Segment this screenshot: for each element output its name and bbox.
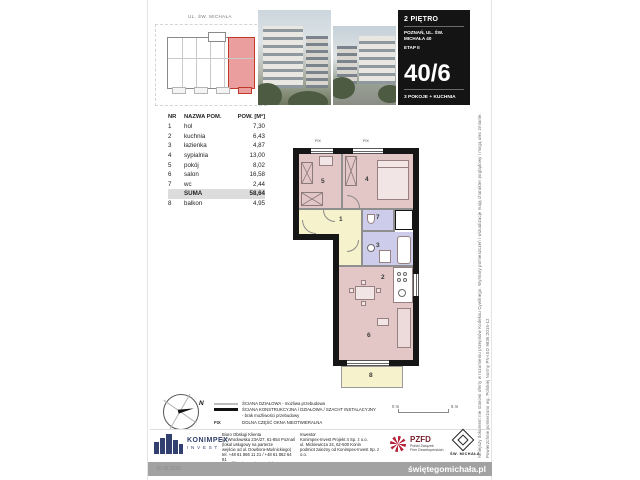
room-label-5: 5 [321, 178, 325, 185]
layout-label: 3 POKOJE + KUCHNIA [404, 95, 464, 100]
disclaimer-outer: Powierzchnie pomierzono wg. Polskiej Nor… [485, 8, 490, 458]
row-nr: 8 [168, 200, 182, 207]
balcony-mark [172, 87, 186, 94]
page-edge-right [491, 0, 492, 480]
stove-burner [403, 278, 407, 282]
fix-annotation: FIX [315, 139, 321, 143]
partition-hol-wc [361, 210, 363, 267]
fix-annotation: FIX [363, 139, 369, 143]
room-label-2: 2 [381, 274, 385, 281]
stove-burner [397, 272, 401, 276]
row-name: sypialnia [182, 152, 237, 159]
table-row: 2kuchnia6,43 [168, 132, 265, 142]
col-area: POW. [M²] [237, 114, 265, 120]
furniture-sofa [397, 308, 411, 348]
table-row: 4sypialnia13,00 [168, 151, 265, 161]
wall-left [293, 148, 299, 240]
balcony-mark-highlighted [238, 87, 252, 94]
furniture-dining-table [355, 286, 375, 300]
row-area: 13,00 [237, 152, 265, 159]
furniture-coffee-table [377, 318, 389, 326]
street-label: UL. ŚW. MICHAŁA [155, 14, 265, 19]
row-nr: 4 [168, 152, 182, 159]
date-label: 10.06.2020 [156, 466, 181, 472]
compass-icon: N [162, 392, 208, 432]
sw-michala-logo: ŚW. MICHAŁA [450, 430, 480, 460]
balcony-mark [194, 87, 208, 94]
stair-core [208, 32, 226, 42]
site-plan-building [167, 37, 255, 89]
row-area: 8,02 [237, 162, 265, 169]
row-nr: 7 [168, 181, 182, 188]
divider [404, 26, 464, 27]
furniture-wardrobe [301, 192, 323, 206]
bathroom-sink [367, 244, 375, 252]
diamond-icon [452, 429, 475, 452]
row-nr: 2 [168, 133, 182, 140]
row-area: 4,87 [237, 142, 265, 149]
floor-plan: FIX FIX 5 4 1 7 3 2 [285, 136, 433, 394]
row-area: 2,44 [237, 181, 265, 188]
window-sypialnia [353, 148, 383, 154]
furniture-desk [319, 156, 333, 166]
highlighted-unit [228, 37, 255, 89]
washing-machine [379, 250, 391, 263]
unit-number: 40/6 [404, 62, 464, 86]
row-nr: 5 [168, 162, 182, 169]
structural-wall-swatch [214, 408, 238, 411]
disclaimer-inner: Niniejszy dokument nie stanowi oferty w … [477, 8, 482, 458]
bathtub [397, 236, 411, 264]
table-row: 8balkon4,95 [168, 199, 265, 209]
page-edge-left [147, 0, 148, 480]
row-area: 4,95 [237, 200, 265, 207]
partition-5-4 [341, 154, 343, 208]
row-nr: 1 [168, 123, 182, 130]
stage-label: ETAP II [404, 45, 464, 50]
partition-wc-lazienka [363, 230, 393, 232]
footer-divider [150, 429, 490, 430]
compass-north-label: N [199, 400, 204, 407]
toilet [367, 214, 375, 224]
row-nr: 6 [168, 171, 182, 178]
row-area: 7,30 [237, 123, 265, 130]
pzfd-sub2: Firm Deweloperskich [410, 448, 444, 452]
room-table: NR NAZWA POM. POW. [M²] 1hol7,30 2kuchni… [168, 112, 265, 208]
furniture-chair [376, 288, 381, 293]
address-label: POZNAŃ, UL. ŚW. MICHAŁA 40 [404, 30, 464, 42]
furniture-wardrobe [345, 156, 357, 186]
furniture-chair [361, 301, 366, 306]
window-balkon-door [347, 360, 389, 366]
legend-structural-text: ŚCIANA KONSTRUKCYJNA / DZIAŁOWA / SZACHT… [242, 407, 376, 412]
table-row: 3łazienka4,87 [168, 141, 265, 151]
table-row: 6salon16,58 [168, 170, 265, 180]
legend-structural-text2: - brak możliwości przebudowy [242, 413, 299, 418]
pzfd-abbr: PZFD [410, 435, 444, 444]
bottom-bar: 10.06.2020 świętegomichała.pl [148, 462, 492, 476]
room-label-1: 1 [339, 216, 343, 223]
row-name: balkon [182, 200, 237, 207]
scale-end-label: 5 m [451, 404, 458, 409]
furniture-wardrobe [301, 162, 313, 184]
floor-label: 2 PIĘTRO [404, 16, 464, 23]
unit-info-card: 2 PIĘTRO POZNAŃ, UL. ŚW. MICHAŁA 40 ETAP… [398, 10, 470, 105]
stove-burner [403, 272, 407, 276]
window-kuchnia [413, 274, 419, 296]
wall-right [413, 148, 419, 366]
room-label-4: 4 [365, 176, 369, 183]
kitchen-sink [398, 289, 406, 297]
row-area: 58,64 [237, 190, 265, 197]
row-area: 6,43 [237, 133, 265, 140]
furniture-chair [349, 288, 354, 293]
room-label-7: 7 [376, 214, 380, 221]
legend-fix-text: DOLNA CZĘŚĆ OKNA NIEOTWIERALNA [242, 420, 322, 425]
building-rendering-2 [333, 26, 396, 105]
table-row-suma: SUMA58,64 [168, 189, 265, 199]
furniture-chair [361, 280, 366, 285]
row-name: łazienka [182, 142, 237, 149]
stove-burner [397, 278, 401, 282]
row-name: SUMA [182, 190, 237, 197]
building-rendering-1 [258, 10, 331, 105]
scale-start-label: 0 m [392, 404, 399, 409]
investor-info: Inwestor Konimpex-Invest Projekt 4 Sp. z… [300, 433, 380, 458]
konimpex-logo: KONIMPEX INVEST [154, 434, 216, 458]
table-row: 5pokój8,02 [168, 160, 265, 170]
divider [404, 89, 464, 90]
row-nr: 3 [168, 142, 182, 149]
site-plan [155, 24, 267, 106]
furniture-bed-pillows [377, 160, 409, 168]
wall-lower-left [333, 234, 339, 366]
room-label-6: 6 [367, 332, 371, 339]
room-label-8: 8 [369, 372, 373, 379]
col-name: NAZWA POM. [182, 114, 237, 120]
balcony-mark [216, 87, 230, 94]
col-nr: NR [168, 114, 182, 120]
table-header: NR NAZWA POM. POW. [M²] [168, 112, 265, 122]
room-label-3: 3 [376, 242, 380, 249]
table-row: 1hol7,30 [168, 122, 265, 132]
investor-note: podmiot zależny od Konimpex-Invest Sp. z… [300, 448, 380, 458]
row-name: wc [182, 181, 237, 188]
row-name: kuchnia [182, 133, 237, 140]
row-name: pokój [182, 162, 237, 169]
partition-wall-swatch [214, 403, 238, 405]
pzfd-logo: PZFD Polski Związek Firm Deweloperskich [390, 434, 446, 458]
window-pokoj [311, 148, 333, 154]
pzfd-rosette-icon [390, 436, 406, 452]
legend-partition-text: ŚCIANA DZIAŁOWA - możliwa przebudowa [242, 401, 325, 406]
row-name: hol [182, 123, 237, 130]
legend-fix-key: FIX [214, 420, 238, 425]
website-label: świętegomichała.pl [408, 464, 486, 474]
row-area: 16,58 [237, 171, 265, 178]
installation-shaft [395, 210, 413, 230]
apartment-card-page: UL. ŚW. MICHAŁA 2 PIĘTRO POZNAŃ, UL. ŚW [0, 0, 640, 480]
table-row: 7wc2,44 [168, 180, 265, 190]
row-name: salon [182, 171, 237, 178]
